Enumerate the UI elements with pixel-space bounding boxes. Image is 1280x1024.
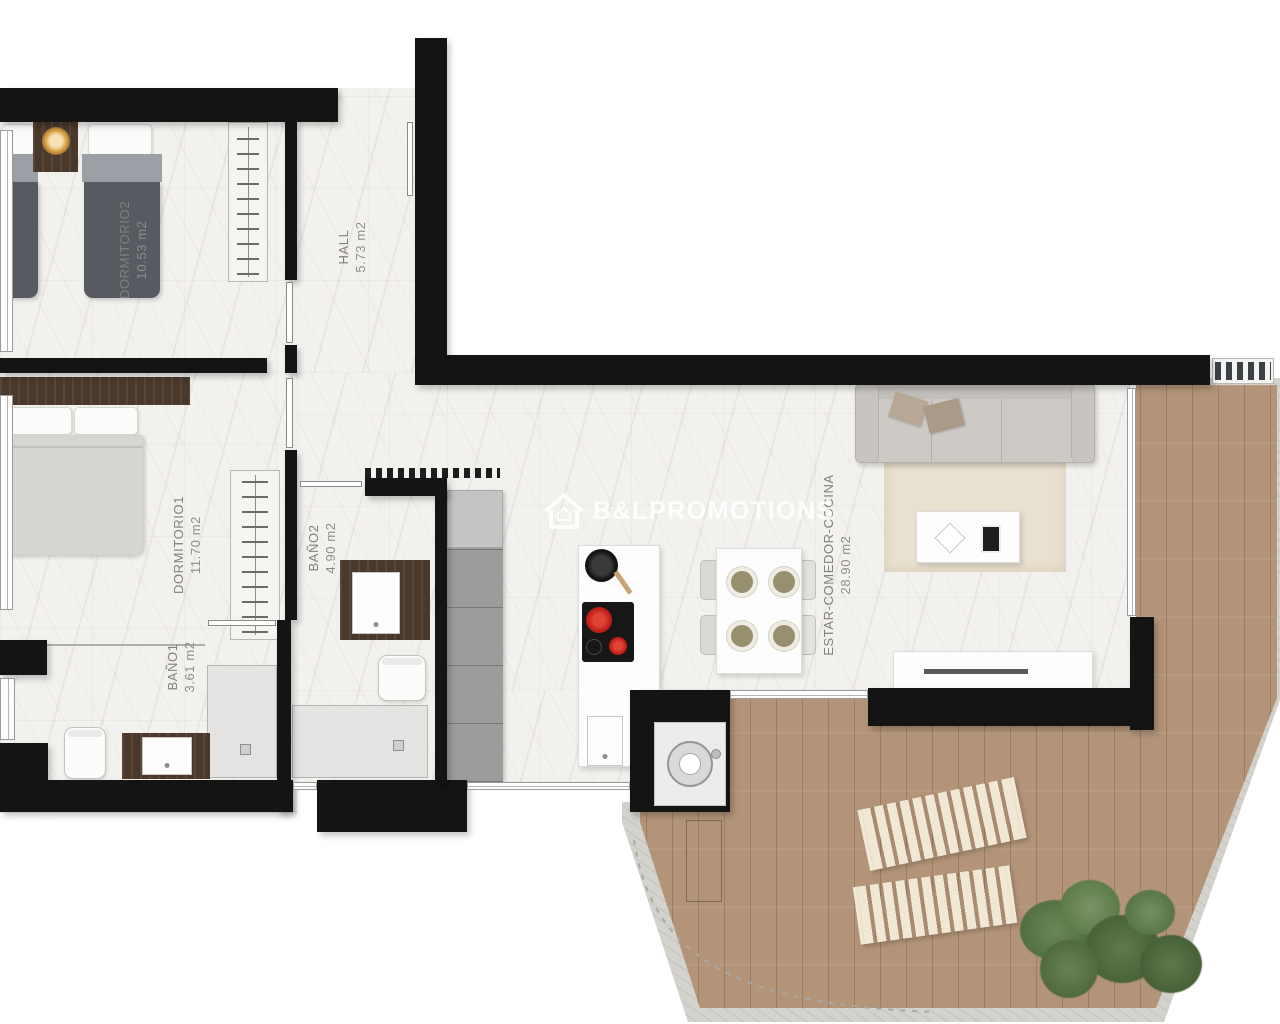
wall <box>415 38 447 360</box>
headboard <box>0 377 190 405</box>
wall <box>868 688 1135 726</box>
place-setting <box>769 621 799 651</box>
plant <box>1010 880 1250 1020</box>
wall <box>0 88 338 122</box>
wall <box>1130 617 1154 730</box>
window-bedroom1 <box>0 395 13 610</box>
shower-bath2 <box>292 705 428 778</box>
room-label-hall: HALL5.73 m2 <box>335 221 369 272</box>
burner-off <box>586 639 602 655</box>
double-bed <box>0 435 143 555</box>
wall <box>285 450 297 620</box>
sink-bath1 <box>142 737 192 775</box>
place-setting <box>727 567 757 597</box>
cushion-divider <box>1001 399 1002 462</box>
door-bath2 <box>300 481 362 487</box>
shower-drain <box>240 744 251 755</box>
table-decor <box>934 522 965 553</box>
washer-door <box>679 753 701 775</box>
sink-bath2 <box>352 572 400 634</box>
bed2-blanket-right <box>82 154 162 182</box>
window-bath2 <box>293 782 317 790</box>
door-bedroom2 <box>286 282 293 343</box>
sliding-door-terrace-east <box>1127 388 1136 616</box>
washing-machine <box>654 722 726 806</box>
washer-knob <box>711 749 721 759</box>
bed2-pillow-right <box>88 124 152 156</box>
planter-outline <box>686 820 722 902</box>
shower-bath1 <box>207 665 277 778</box>
burner-small <box>609 637 627 655</box>
shower-drain <box>393 740 404 751</box>
watermark-brand: B&LPROMOTIONS <box>593 497 835 526</box>
sofa-armrest <box>1071 384 1094 462</box>
wall <box>285 120 297 280</box>
room-label-dormitorio1: DORMITORIO111.70 m2 <box>170 496 204 594</box>
window-bath1 <box>0 678 15 740</box>
door-bedroom1 <box>286 378 293 448</box>
wall <box>0 358 267 373</box>
floor-plan: DORMITORIO210.53 m2 HALL5.73 m2 DORMITOR… <box>0 0 1280 1024</box>
wall <box>415 355 1210 385</box>
wardrobe-bedroom1 <box>230 470 280 640</box>
bed1-pillow-left <box>8 407 72 435</box>
duvet-fold <box>0 446 143 448</box>
hangers <box>242 477 269 633</box>
wardrobe-bedroom2 <box>228 122 268 282</box>
wall <box>317 780 467 832</box>
window-bedroom2 <box>0 130 13 352</box>
fridge <box>447 490 503 548</box>
sofa-pillow <box>923 398 965 434</box>
sliding-door-terrace-south <box>730 690 868 699</box>
lamp <box>42 127 70 155</box>
tablet <box>981 525 1001 553</box>
bed1-pillow-right <box>74 407 138 435</box>
burner-large <box>586 607 612 633</box>
coffee-table <box>916 511 1020 563</box>
wall <box>0 743 48 812</box>
place-setting <box>727 621 757 651</box>
wall <box>285 345 297 373</box>
tv <box>924 669 1028 674</box>
terrace-railing <box>1212 358 1274 384</box>
railing-slats <box>1215 362 1271 380</box>
frying-pan <box>585 549 618 582</box>
toilet-bath2 <box>378 655 426 701</box>
wall <box>435 487 447 783</box>
wall <box>0 640 47 675</box>
kitchen-sink <box>587 716 623 766</box>
hangers <box>237 129 258 275</box>
watermark: B&LPROMOTIONS <box>543 492 835 530</box>
sofa <box>855 383 1095 463</box>
sofa-armrest <box>856 384 879 462</box>
place-setting <box>769 567 799 597</box>
toilet-bath1 <box>64 727 106 779</box>
wall <box>48 780 293 812</box>
entry-door-leaf <box>407 122 413 196</box>
tiled-wall-hatch <box>365 468 500 478</box>
house-icon <box>543 492 585 530</box>
dining-table <box>716 548 802 674</box>
door-bath1 <box>208 620 276 626</box>
room-label-bano2: BAÑO24.90 m2 <box>305 522 339 573</box>
room-label-bano1: BAÑO13.61 m2 <box>164 641 198 692</box>
window-kitchen <box>467 782 630 790</box>
sofa-back <box>856 384 1094 399</box>
room-label-dormitorio2: DORMITORIO210.53 m2 <box>116 201 150 299</box>
